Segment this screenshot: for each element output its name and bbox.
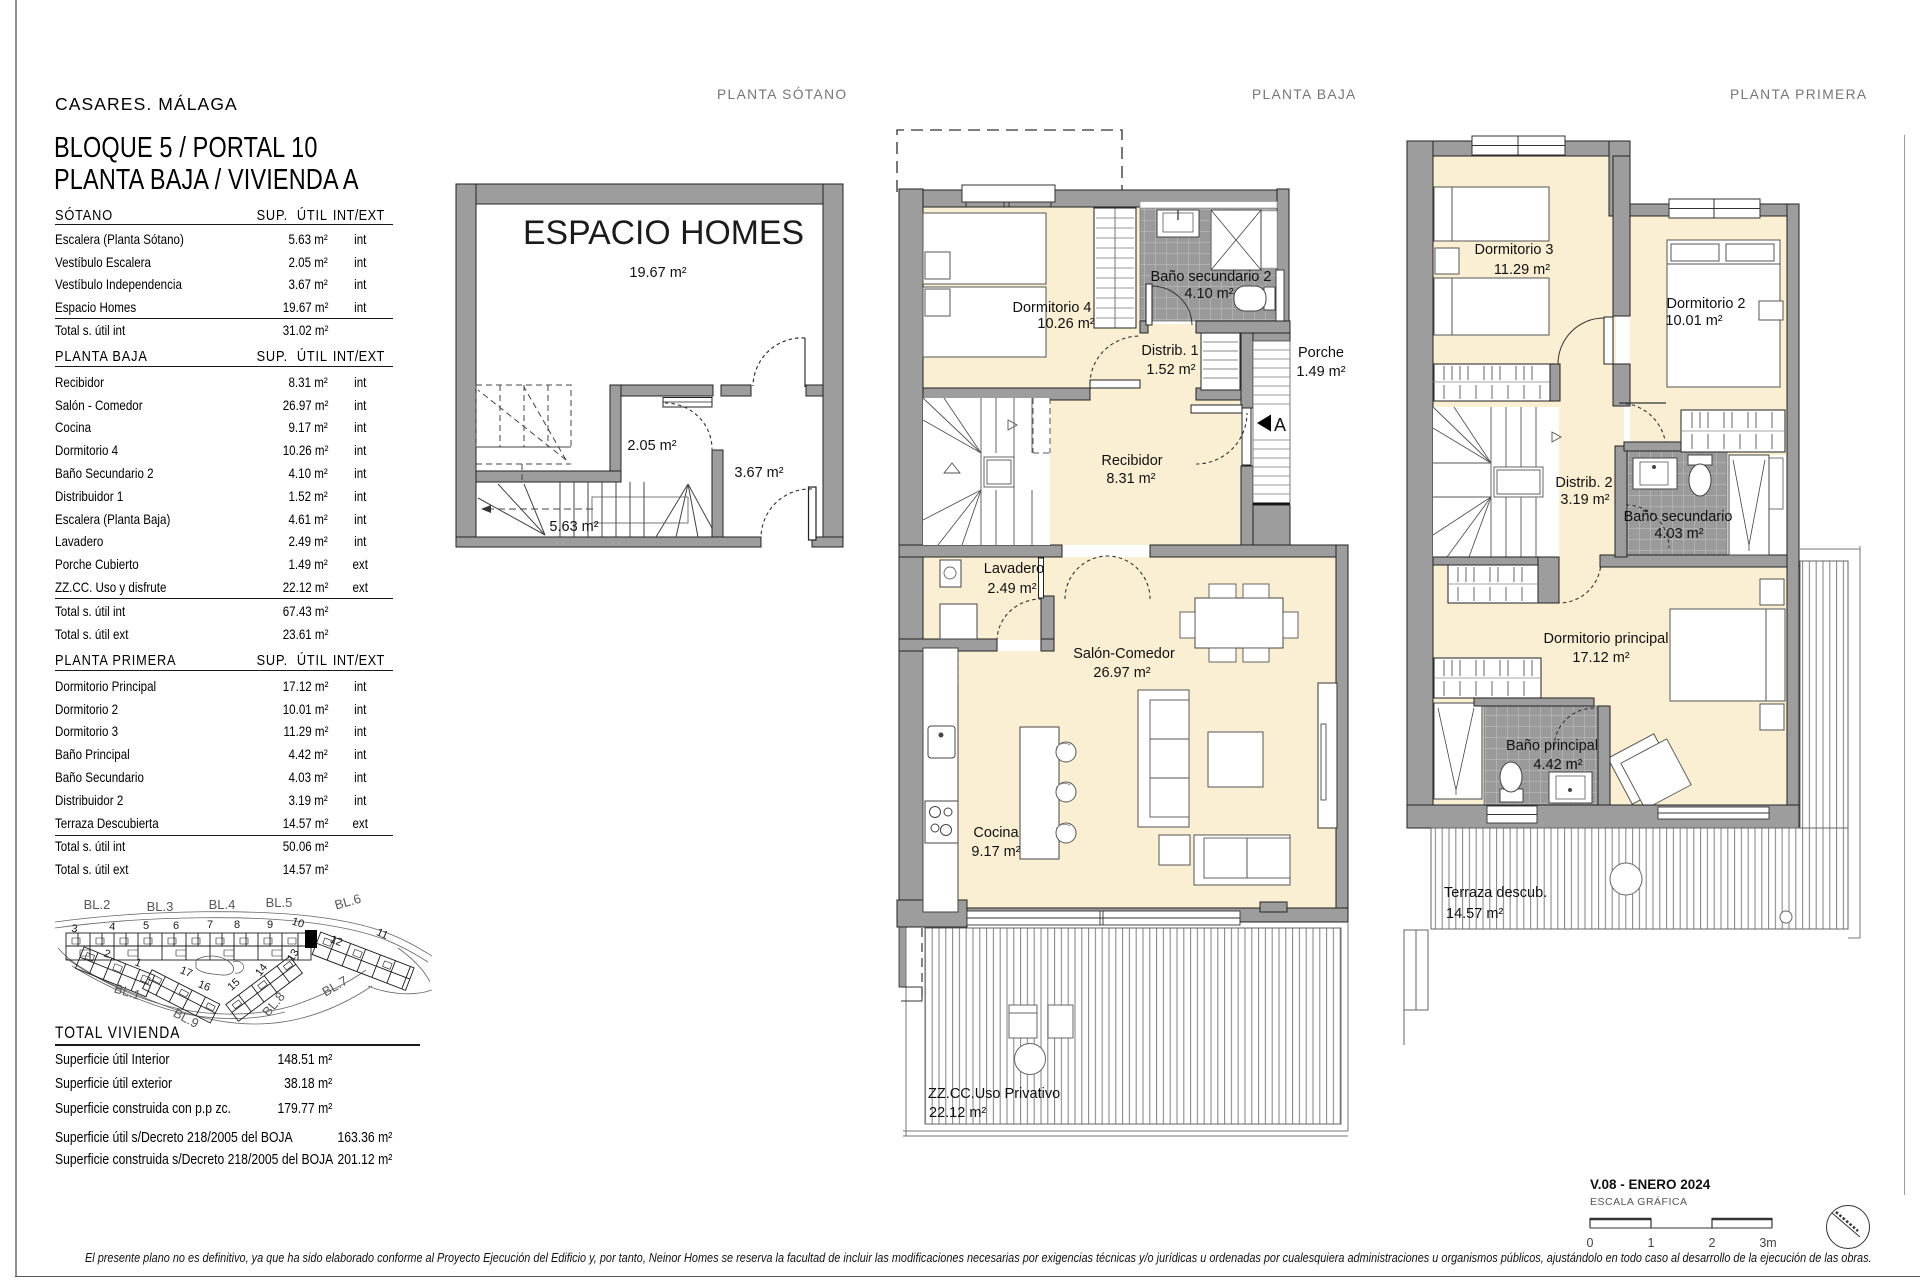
svg-text:19.67 m²: 19.67 m² <box>629 265 686 281</box>
svg-text:9.17 m²: 9.17 m² <box>971 844 1020 860</box>
svg-text:A: A <box>1274 415 1286 435</box>
svg-text:13: 13 <box>285 947 302 964</box>
svg-text:17.12 m²: 17.12 m² <box>1572 650 1629 666</box>
svg-text:1: 1 <box>133 956 143 969</box>
svg-text:8.31 m²: 8.31 m² <box>1106 471 1155 487</box>
svg-text:Salón-Comedor: Salón-Comedor <box>1073 646 1175 662</box>
svg-text:9: 9 <box>267 919 273 931</box>
svg-text:Dormitorio 2: Dormitorio 2 <box>1667 296 1746 312</box>
svg-text:BL.6: BL.6 <box>333 891 363 913</box>
svg-text:3.67 m²: 3.67 m² <box>734 465 783 481</box>
svg-text:BL.8: BL.8 <box>259 989 288 1019</box>
svg-text:ZZ.CC.Uso Privativo: ZZ.CC.Uso Privativo <box>928 1086 1060 1102</box>
svg-text:BL.1: BL.1 <box>112 981 142 1003</box>
svg-text:4: 4 <box>109 921 116 933</box>
svg-text:Porche: Porche <box>1298 345 1344 361</box>
svg-text:0: 0 <box>1587 1236 1594 1250</box>
svg-text:Recibidor: Recibidor <box>1101 453 1162 469</box>
svg-text:BL.4: BL.4 <box>209 897 236 912</box>
svg-text:15: 15 <box>225 976 242 993</box>
svg-text:14.57 m²: 14.57 m² <box>1446 906 1503 922</box>
svg-text:4.10 m²: 4.10 m² <box>1184 286 1233 302</box>
svg-text:7: 7 <box>207 919 213 931</box>
svg-text:2.49 m²: 2.49 m² <box>987 581 1036 597</box>
svg-text:2: 2 <box>1709 1236 1716 1250</box>
svg-text:10.01 m²: 10.01 m² <box>1665 313 1722 329</box>
svg-text:BL.7: BL.7 <box>319 973 350 999</box>
svg-text:14: 14 <box>253 962 270 979</box>
svg-text:17: 17 <box>178 964 194 980</box>
svg-text:Baño principal: Baño principal <box>1506 738 1598 754</box>
svg-text:Dormitorio 3: Dormitorio 3 <box>1475 242 1554 258</box>
svg-text:5: 5 <box>143 920 149 932</box>
svg-text:BL.3: BL.3 <box>147 899 174 914</box>
svg-text:Dormitorio 4: Dormitorio 4 <box>1013 300 1092 316</box>
svg-text:Distrib. 1: Distrib. 1 <box>1141 343 1198 359</box>
svg-text:8: 8 <box>234 919 240 931</box>
svg-text:4.42 m²: 4.42 m² <box>1533 757 1582 773</box>
svg-text:ESCALA GRÁFICA: ESCALA GRÁFICA <box>1590 1195 1687 1208</box>
svg-text:3: 3 <box>71 923 79 936</box>
svg-text:2: 2 <box>102 947 112 960</box>
svg-text:Terraza descub.: Terraza descub. <box>1444 885 1547 901</box>
svg-text:1.49 m²: 1.49 m² <box>1296 364 1345 380</box>
svg-text:1.52 m²: 1.52 m² <box>1146 362 1195 378</box>
svg-text:Baño secundario 2: Baño secundario 2 <box>1151 269 1272 285</box>
svg-text:11: 11 <box>375 926 390 942</box>
svg-text:10.26 m²: 10.26 m² <box>1037 316 1094 332</box>
svg-text:Distrib. 2: Distrib. 2 <box>1555 475 1612 491</box>
svg-text:16: 16 <box>196 978 212 994</box>
svg-text:10: 10 <box>290 916 305 931</box>
svg-text:Dormitorio principal: Dormitorio principal <box>1544 631 1669 647</box>
svg-text:6: 6 <box>173 920 179 932</box>
svg-text:2.05 m²: 2.05 m² <box>627 438 676 454</box>
svg-text:Lavadero: Lavadero <box>984 561 1044 577</box>
svg-text:4.03 m²: 4.03 m² <box>1654 526 1703 542</box>
svg-text:3.19 m²: 3.19 m² <box>1560 492 1609 508</box>
svg-text:Baño secundario: Baño secundario <box>1624 509 1733 525</box>
svg-text:26.97 m²: 26.97 m² <box>1093 665 1150 681</box>
svg-text:BL.9: BL.9 <box>171 1005 202 1031</box>
svg-text:V.08 - ENERO 2024: V.08 - ENERO 2024 <box>1590 1177 1711 1192</box>
svg-text:ESPACIO HOMES: ESPACIO HOMES <box>523 214 804 252</box>
svg-text:1: 1 <box>1648 1236 1655 1250</box>
svg-text:11.29 m²: 11.29 m² <box>1494 262 1550 278</box>
svg-text:3m: 3m <box>1759 1236 1776 1250</box>
svg-text:22.12 m²: 22.12 m² <box>929 1105 986 1121</box>
svg-text:Cocina: Cocina <box>973 825 1019 841</box>
svg-text:BL.5: BL.5 <box>266 895 293 910</box>
svg-text:BL.2: BL.2 <box>84 897 111 912</box>
svg-text:5.63 m²: 5.63 m² <box>549 519 598 535</box>
